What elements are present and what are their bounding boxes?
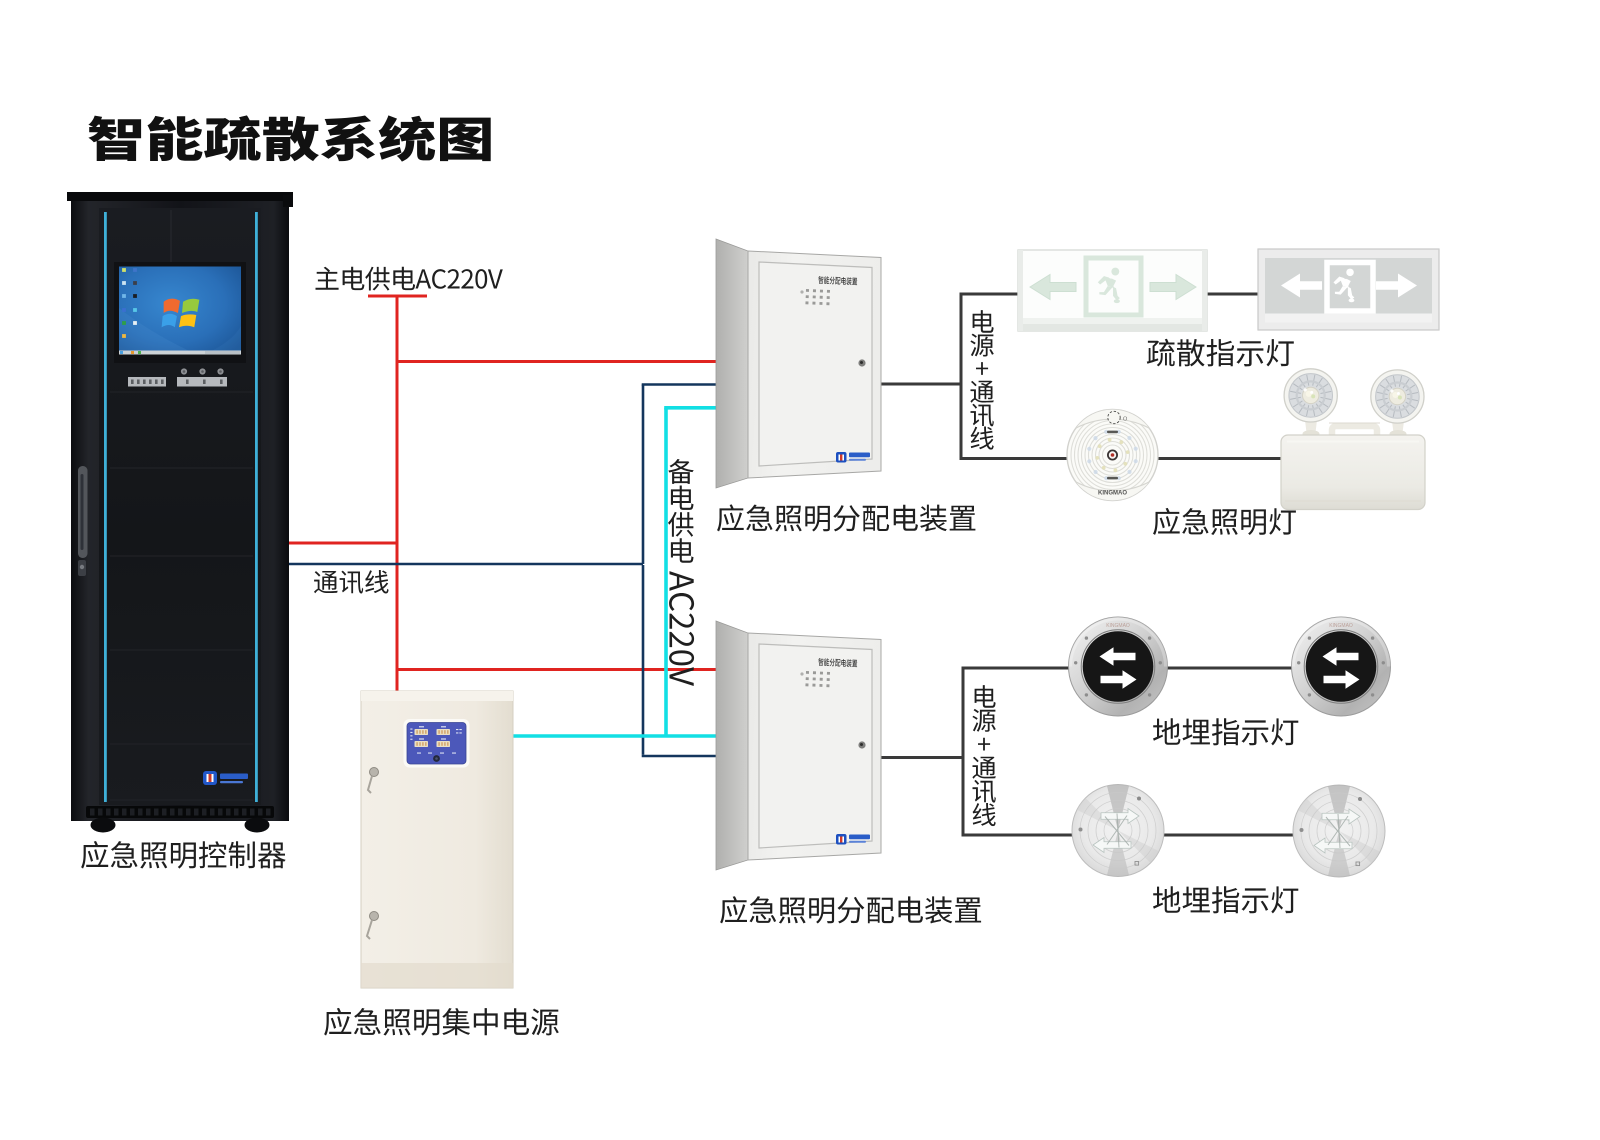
svg-text:KINGMAO: KINGMAO bbox=[1329, 623, 1353, 629]
svg-text:O: O bbox=[1123, 417, 1128, 423]
svg-text:KINGMAO: KINGMAO bbox=[1106, 623, 1130, 629]
svg-text:KINGMAO: KINGMAO bbox=[1098, 491, 1127, 497]
